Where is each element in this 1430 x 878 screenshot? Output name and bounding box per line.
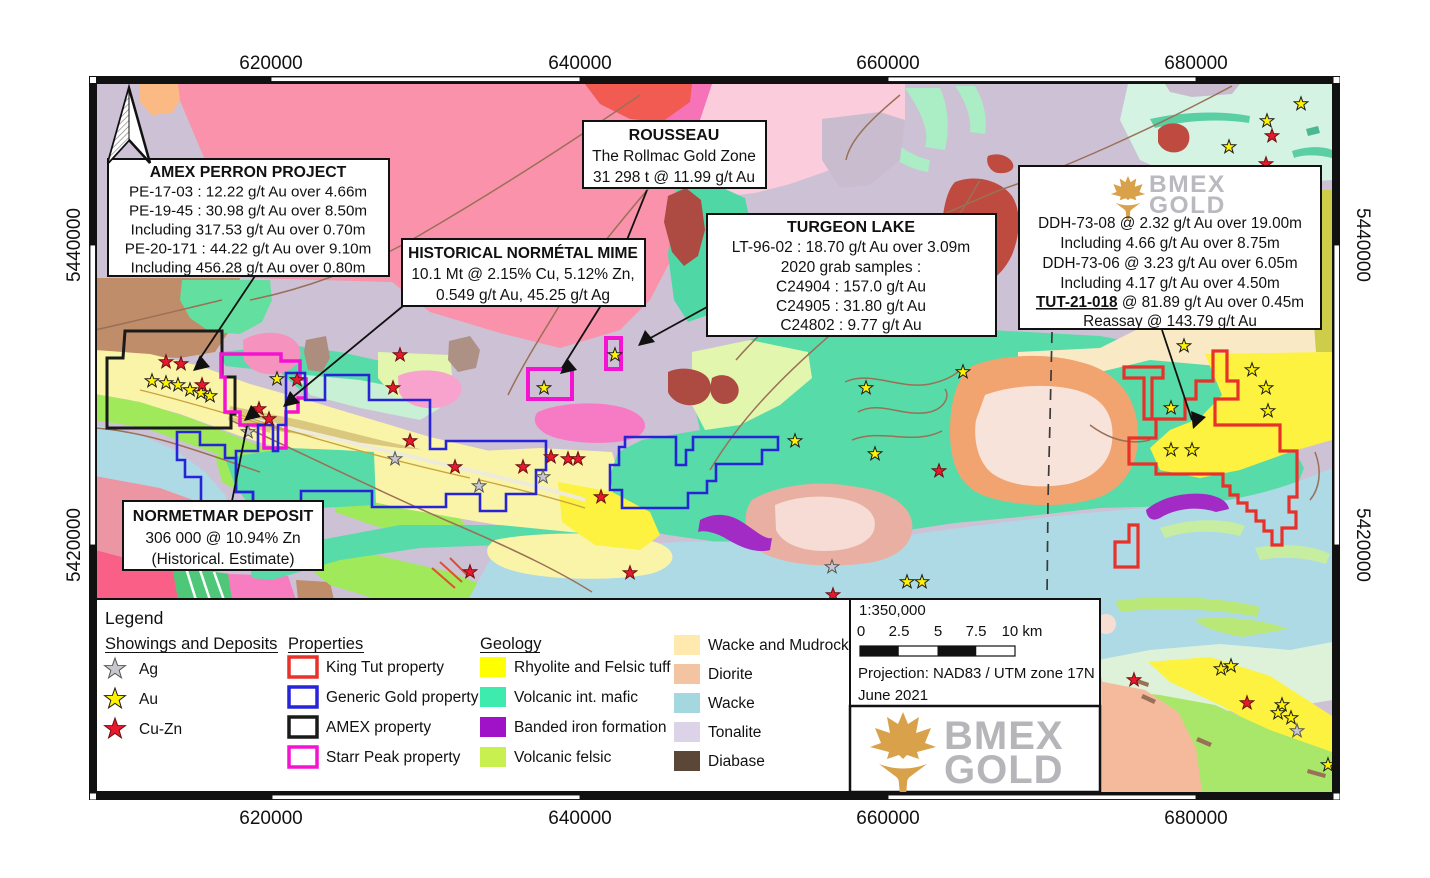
svg-text:C24802 : 9.77 g/t Au: C24802 : 9.77 g/t Au bbox=[780, 317, 921, 334]
svg-text:660000: 660000 bbox=[856, 53, 919, 74]
svg-text:0: 0 bbox=[857, 623, 865, 640]
svg-text:5440000: 5440000 bbox=[1352, 208, 1373, 282]
svg-text:PE-19-45 : 30.98 g/t Au over 8: PE-19-45 : 30.98 g/t Au over 8.50m bbox=[129, 203, 367, 220]
svg-text:Starr Peak property: Starr Peak property bbox=[326, 749, 461, 766]
svg-text:DDH-73-06 @ 3.23 g/t Au over 6: DDH-73-06 @ 3.23 g/t Au over 6.05m bbox=[1042, 255, 1297, 272]
svg-text:The Rollmac Gold Zone: The Rollmac Gold Zone bbox=[592, 148, 756, 165]
svg-text:Volcanic int. mafic: Volcanic int. mafic bbox=[514, 689, 638, 706]
svg-text:AMEX property: AMEX property bbox=[326, 719, 431, 736]
svg-text:Including 4.66 g/t Au over 8.7: Including 4.66 g/t Au over 8.75m bbox=[1060, 235, 1279, 252]
svg-text:PE-20-171 : 44.22 g/t Au over: PE-20-171 : 44.22 g/t Au over 9.10m bbox=[125, 241, 372, 258]
svg-text:PE-17-03 : 12.22 g/t Au over 4: PE-17-03 : 12.22 g/t Au over 4.66m bbox=[129, 184, 367, 201]
svg-text:10 km: 10 km bbox=[1002, 623, 1043, 640]
svg-text:7.5: 7.5 bbox=[966, 623, 987, 640]
svg-text:GOLD: GOLD bbox=[944, 748, 1064, 792]
svg-text:Diabase: Diabase bbox=[708, 753, 765, 770]
svg-text:680000: 680000 bbox=[1164, 808, 1227, 829]
svg-text:660000: 660000 bbox=[856, 808, 919, 829]
svg-text:King Tut property: King Tut property bbox=[326, 659, 444, 676]
svg-text:HISTORICAL NORMÉTAL MIME: HISTORICAL NORMÉTAL MIME bbox=[408, 245, 638, 262]
svg-text:C24904 : 157.0 g/t Au: C24904 : 157.0 g/t Au bbox=[776, 279, 926, 296]
svg-text:2.5: 2.5 bbox=[889, 623, 910, 640]
svg-text:Volcanic felsic: Volcanic felsic bbox=[514, 749, 612, 766]
svg-text:Properties: Properties bbox=[288, 635, 363, 653]
svg-text:TUT-21-018 @ 81.89 g/t Au over: TUT-21-018 @ 81.89 g/t Au over 0.45m bbox=[1036, 294, 1304, 311]
svg-text:Legend: Legend bbox=[105, 608, 163, 628]
svg-text:Including 456.28 g/t Au over 0: Including 456.28 g/t Au over 0.80m bbox=[131, 260, 366, 277]
svg-text:1:350,000: 1:350,000 bbox=[859, 602, 926, 619]
svg-text:5420000: 5420000 bbox=[64, 508, 85, 582]
svg-text:5: 5 bbox=[934, 623, 942, 640]
svg-text:Cu-Zn: Cu-Zn bbox=[139, 721, 182, 738]
svg-text:(Historical. Estimate): (Historical. Estimate) bbox=[152, 551, 295, 568]
svg-text:620000: 620000 bbox=[239, 808, 302, 829]
svg-text:640000: 640000 bbox=[548, 808, 611, 829]
svg-text:31 298 t @ 11.99 g/t Au: 31 298 t @ 11.99 g/t Au bbox=[593, 169, 755, 186]
svg-text:June 2021: June 2021 bbox=[858, 687, 928, 704]
svg-text:Ag: Ag bbox=[139, 661, 158, 678]
svg-text:5440000: 5440000 bbox=[64, 208, 85, 282]
svg-text:Geology: Geology bbox=[480, 635, 542, 653]
svg-text:LT-96-02 : 18.70 g/t Au over 3: LT-96-02 : 18.70 g/t Au over 3.09m bbox=[732, 239, 970, 256]
svg-text:Including 317.53 g/t Au over 0: Including 317.53 g/t Au over 0.70m bbox=[131, 222, 366, 239]
svg-text:Including 4.17 g/t Au over 4.5: Including 4.17 g/t Au over 4.50m bbox=[1060, 275, 1279, 292]
svg-text:Projection: NAD83 / UTM zone 1: Projection: NAD83 / UTM zone 17N bbox=[858, 665, 1095, 682]
svg-text:Showings and Deposits: Showings and Deposits bbox=[105, 635, 277, 653]
svg-text:2020 grab samples :: 2020 grab samples : bbox=[781, 259, 921, 276]
svg-text:Wacke and Mudrock: Wacke and Mudrock bbox=[708, 637, 849, 654]
svg-text:Banded iron formation: Banded iron formation bbox=[514, 719, 667, 736]
svg-text:Generic Gold property: Generic Gold property bbox=[326, 689, 479, 706]
svg-text:620000: 620000 bbox=[239, 53, 302, 74]
svg-text:C24905 : 31.80 g/t Au: C24905 : 31.80 g/t Au bbox=[776, 298, 926, 315]
svg-text:640000: 640000 bbox=[548, 53, 611, 74]
svg-text:5420000: 5420000 bbox=[1352, 508, 1373, 582]
svg-text:TURGEON LAKE: TURGEON LAKE bbox=[787, 219, 915, 236]
svg-text:Rhyolite and Felsic tuff: Rhyolite and Felsic tuff bbox=[514, 659, 671, 676]
svg-text:ROUSSEAU: ROUSSEAU bbox=[629, 127, 720, 144]
svg-text:Diorite: Diorite bbox=[708, 666, 753, 683]
svg-text:0.549 g/t Au, 45.25 g/t Ag: 0.549 g/t Au, 45.25 g/t Ag bbox=[436, 287, 610, 304]
svg-text:NORMETMAR DEPOSIT: NORMETMAR DEPOSIT bbox=[133, 508, 314, 525]
svg-text:DDH-73-08 @ 2.32 g/t Au over 1: DDH-73-08 @ 2.32 g/t Au over 19.00m bbox=[1038, 215, 1302, 232]
svg-text:Reassay @ 143.79 g/t Au: Reassay @ 143.79 g/t Au bbox=[1083, 313, 1257, 330]
svg-text:306 000 @ 10.94% Zn: 306 000 @ 10.94% Zn bbox=[145, 530, 300, 547]
svg-text:AMEX PERRON PROJECT: AMEX PERRON PROJECT bbox=[150, 164, 347, 181]
svg-text:Tonalite: Tonalite bbox=[708, 724, 761, 741]
svg-text:Au: Au bbox=[139, 691, 158, 708]
svg-text:10.1 Mt @ 2.15% Cu, 5.12% Zn,: 10.1 Mt @ 2.15% Cu, 5.12% Zn, bbox=[411, 266, 634, 283]
svg-text:680000: 680000 bbox=[1164, 53, 1227, 74]
svg-text:Wacke: Wacke bbox=[708, 695, 755, 712]
